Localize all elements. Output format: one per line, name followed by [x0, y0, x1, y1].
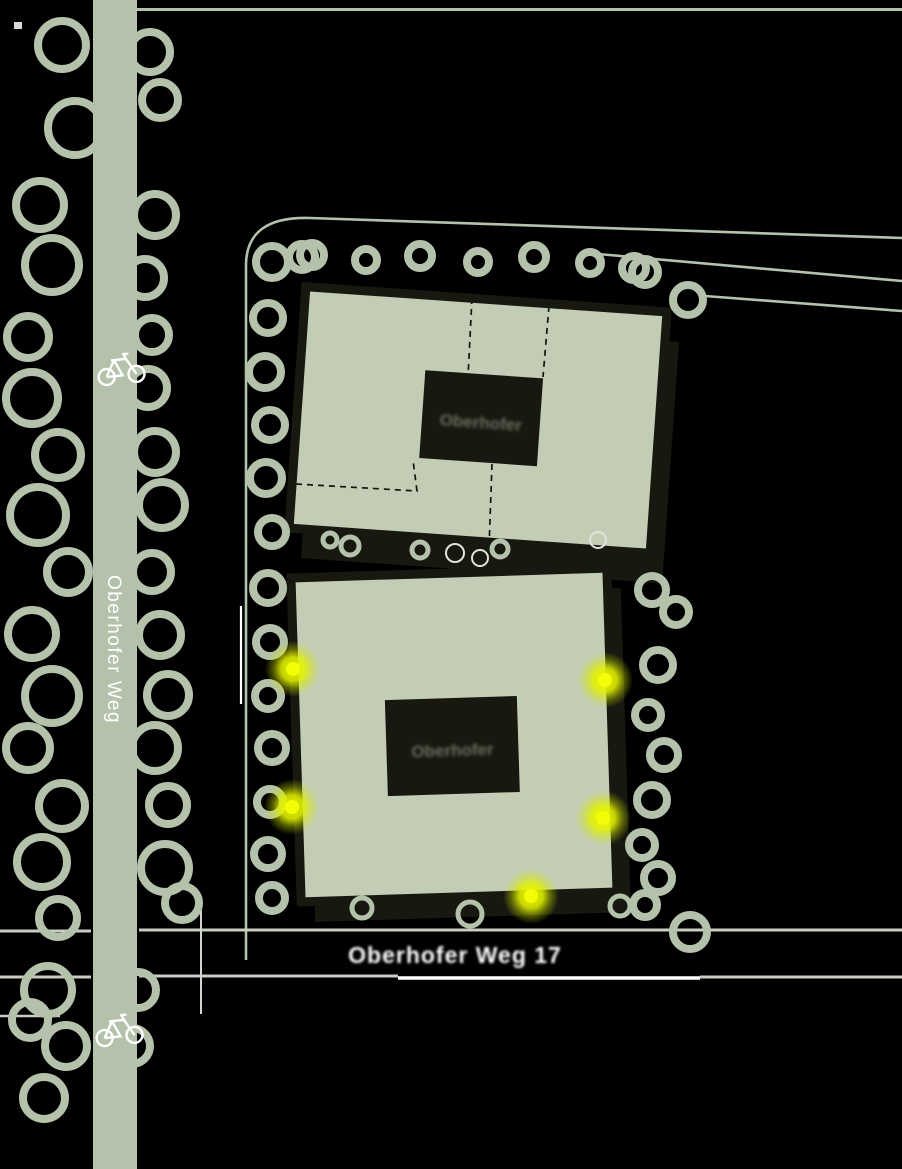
building-bottom-courtyard-label: Oberhofer: [411, 740, 494, 762]
light-marker-icon: [577, 652, 633, 708]
site-plan-map: Oberhofer Oberhofer: [0, 0, 902, 1169]
building-top: Oberhofer: [289, 287, 667, 554]
building-bottom: Oberhofer: [291, 568, 617, 902]
curb-line-top: [137, 8, 902, 11]
light-marker-icon: [575, 790, 631, 846]
street-label-bottom: Oberhofer Weg 17: [348, 942, 562, 968]
light-marker-icon: [265, 641, 321, 697]
map-mark: [14, 22, 22, 29]
street-label-oberhofer-weg: Oberhofer Weg: [103, 575, 124, 724]
light-marker-icon: [264, 779, 320, 835]
light-marker-icon: [503, 868, 559, 924]
site-plan-canvas: Oberhofer Oberhofer: [0, 0, 902, 1169]
